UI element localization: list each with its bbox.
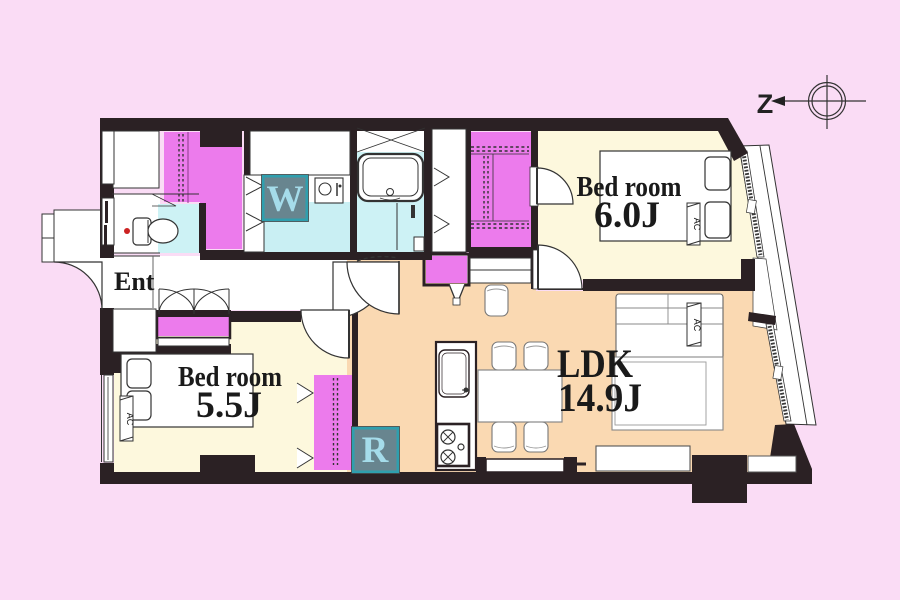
svg-text:Ent: Ent [114, 267, 155, 296]
svg-text:W: W [267, 179, 304, 220]
svg-text:6.0J: 6.0J [594, 195, 660, 236]
svg-text:AC: AC [692, 218, 702, 231]
svg-text:AC: AC [125, 413, 135, 426]
svg-text:AC: AC [692, 319, 702, 332]
svg-text:5.5J: 5.5J [196, 385, 262, 426]
svg-text:R: R [362, 430, 390, 471]
svg-text:14.9J: 14.9J [558, 375, 642, 420]
svg-text:Z: Z [757, 89, 774, 119]
